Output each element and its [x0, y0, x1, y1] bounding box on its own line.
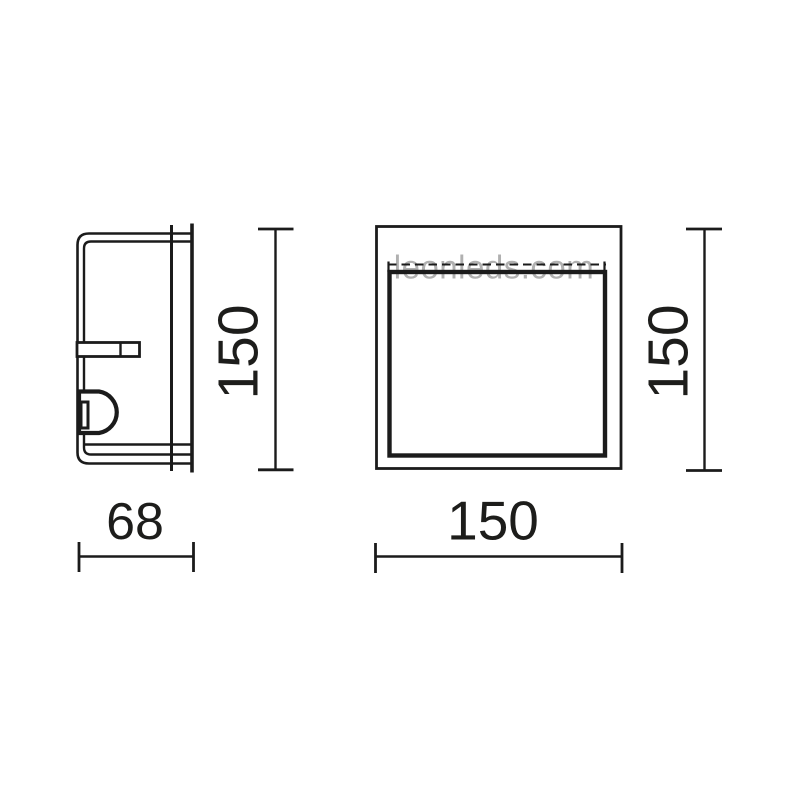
front-height-dimension-value: 150: [641, 304, 698, 399]
side-depth-dimension-value: 68: [106, 496, 164, 548]
mounting-tab: [77, 343, 140, 357]
front-view: [377, 227, 622, 469]
technical-drawing: [0, 0, 800, 800]
side-height-dimension-value: 150: [211, 304, 268, 399]
drawing-canvas: leonleds.com: [0, 0, 800, 800]
spring-clip-inner-bar: [81, 402, 88, 428]
front-view-outer-frame: [377, 227, 622, 469]
side-view: [77, 224, 193, 473]
front-width-dimension-value: 150: [447, 494, 539, 549]
front-view-inner-frame: [390, 272, 606, 456]
